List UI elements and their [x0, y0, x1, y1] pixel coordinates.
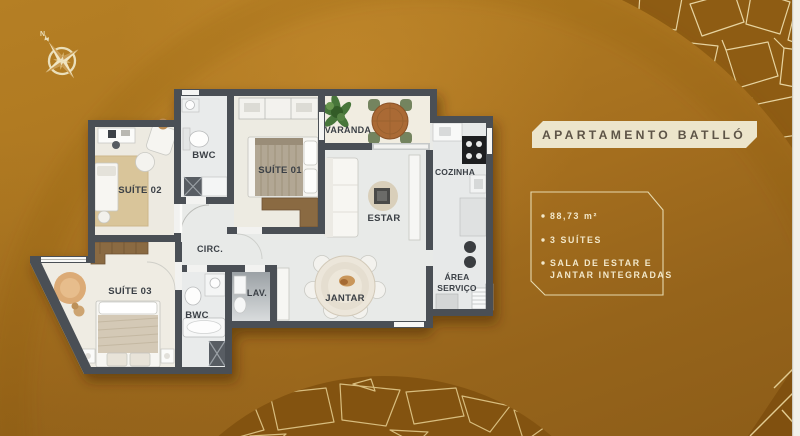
- svg-text:JANTAR INTEGRADAS: JANTAR INTEGRADAS: [550, 270, 673, 280]
- svg-text:SALA DE ESTAR E: SALA DE ESTAR E: [550, 258, 652, 268]
- svg-text:88,73 m²: 88,73 m²: [550, 211, 598, 221]
- svg-text:APARTAMENTO BATLLÓ: APARTAMENTO BATLLÓ: [542, 127, 746, 142]
- svg-text:3 SUÍTES: 3 SUÍTES: [550, 235, 602, 245]
